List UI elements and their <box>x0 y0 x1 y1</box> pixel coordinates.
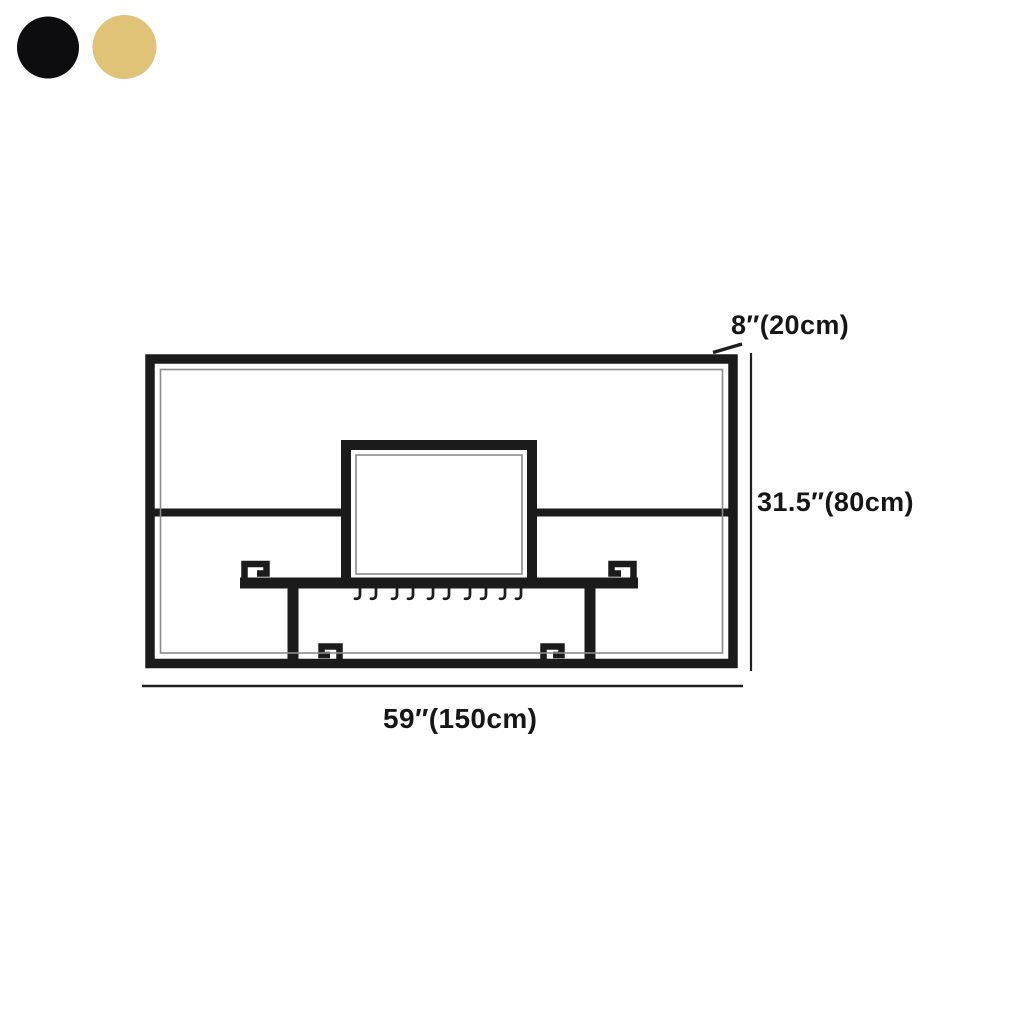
hook <box>444 589 449 599</box>
hook <box>408 589 413 599</box>
stemware-hooks <box>355 589 521 599</box>
color-swatch-gold[interactable] <box>93 15 157 79</box>
height-dimension-label: 31.5″(80cm) <box>757 489 914 516</box>
hook <box>516 589 521 599</box>
hook <box>371 589 376 599</box>
rack-outline-group <box>150 359 733 664</box>
hook <box>465 589 470 599</box>
depth-dimension-label: 8″(20cm) <box>731 312 849 339</box>
width-dimension-label: 59″(150cm) <box>383 705 537 733</box>
hook <box>428 589 433 599</box>
color-swatch-group <box>17 15 157 79</box>
color-swatch-black[interactable] <box>17 17 79 79</box>
hook <box>392 589 397 599</box>
hook <box>481 589 486 599</box>
hook <box>500 589 505 599</box>
center-compartment <box>346 445 532 583</box>
product-dimension-page: 8″(20cm) 31.5″(80cm) 59″(150cm) <box>0 0 1024 1024</box>
hook <box>355 589 360 599</box>
center-compartment-inner-line <box>356 455 522 574</box>
depth-tick-mark <box>713 344 742 353</box>
